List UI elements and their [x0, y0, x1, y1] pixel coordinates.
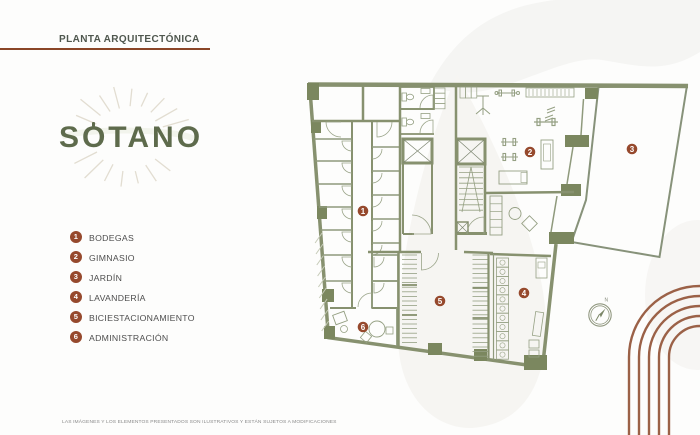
svg-text:5: 5 [438, 297, 443, 306]
svg-text:4: 4 [522, 289, 527, 298]
svg-text:2: 2 [528, 148, 533, 157]
svg-text:N: N [605, 298, 609, 304]
svg-text:1: 1 [361, 207, 366, 216]
svg-text:3: 3 [630, 145, 635, 154]
svg-text:6: 6 [361, 323, 366, 332]
